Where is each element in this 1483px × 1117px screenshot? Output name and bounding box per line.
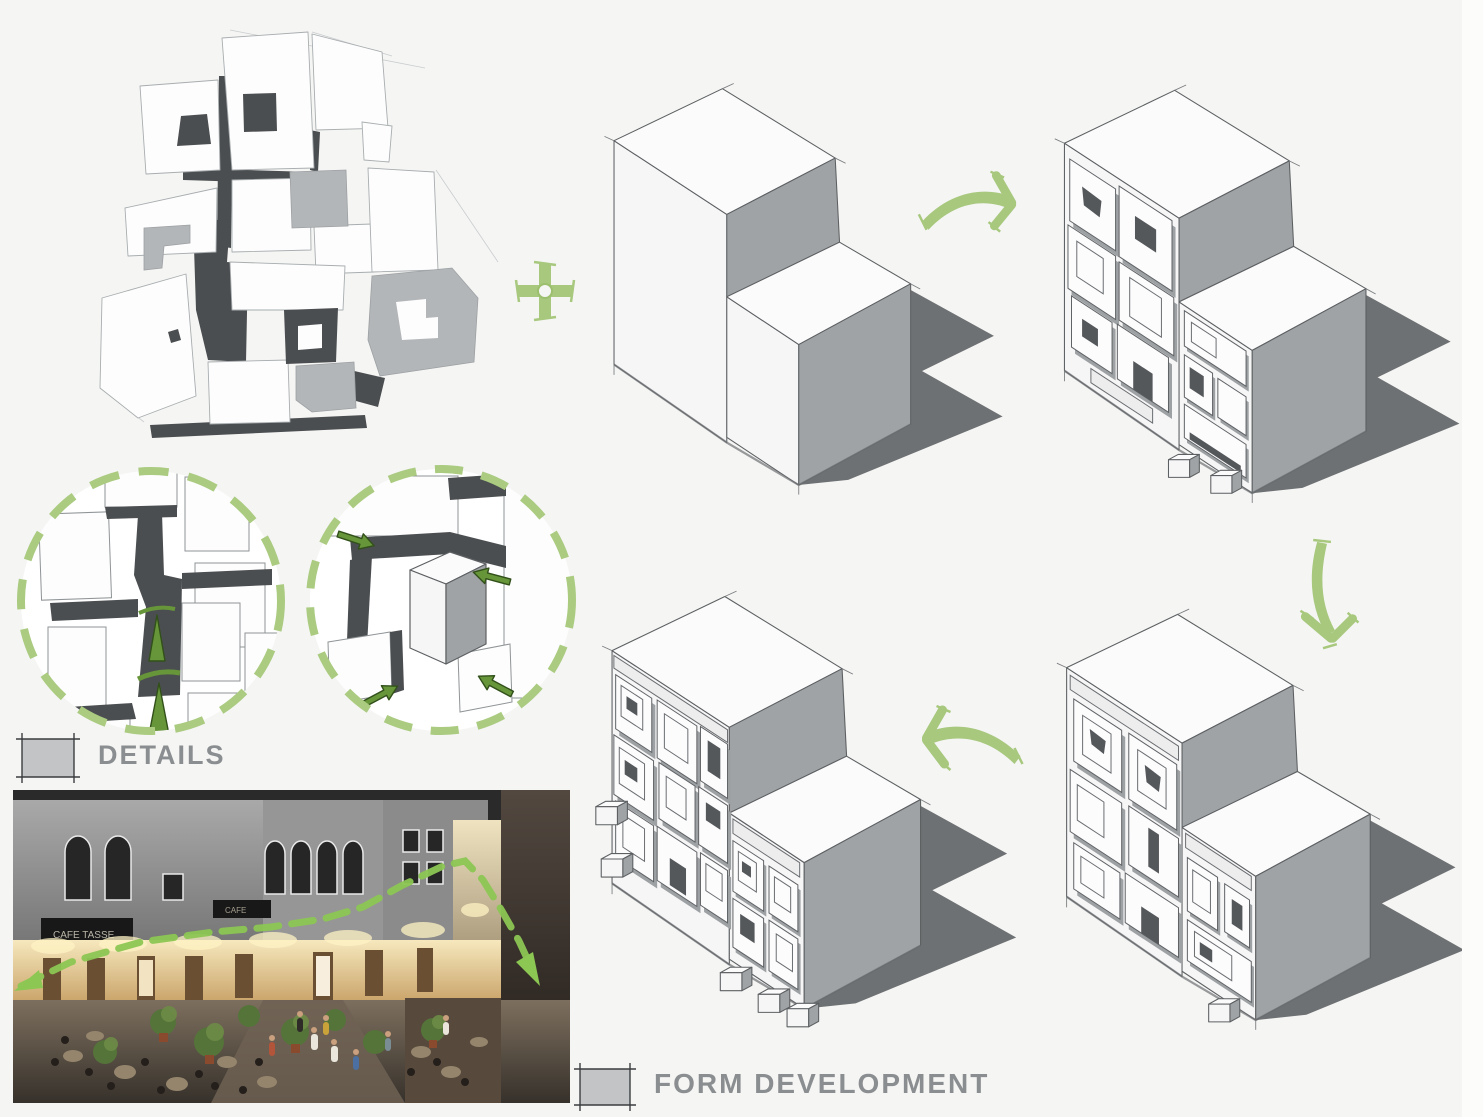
plus-icon	[512, 258, 578, 329]
form-development-label: FORM DEVELOPMENT	[654, 1068, 989, 1100]
cafe-sign-text-2: CAFE	[225, 906, 246, 915]
detail-circle-alley	[10, 455, 292, 752]
presentation-board: DETAILS	[0, 0, 1483, 1117]
massing-model-facade-3	[585, 556, 1027, 1066]
form-development-label-row: FORM DEVELOPMENT	[572, 1062, 989, 1112]
massing-model-simple	[588, 55, 1013, 535]
details-key-square	[14, 732, 84, 784]
massing-model-facade-1	[1038, 60, 1470, 540]
figure-ground-plan-sketch	[80, 10, 500, 445]
board-right-margin	[1462, 0, 1483, 1117]
souq-street-photo: CAFE TASSE CAFE	[13, 790, 570, 1108]
form-development-key-square	[572, 1062, 640, 1112]
details-label: DETAILS	[98, 740, 226, 771]
detail-circle-block	[298, 452, 584, 753]
massing-model-facade-2	[1040, 588, 1475, 1063]
details-label-row: DETAILS	[14, 732, 226, 784]
arrow-right-icon	[916, 162, 1034, 259]
